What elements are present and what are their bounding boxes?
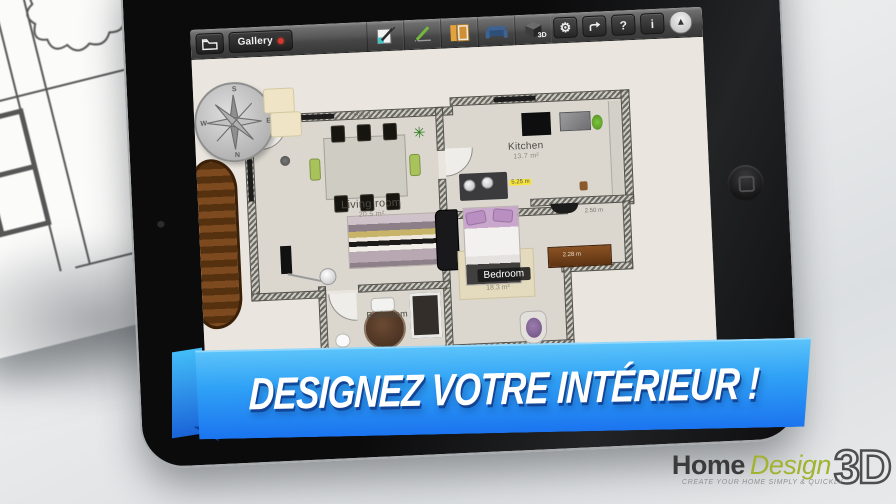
chair-green xyxy=(409,154,421,176)
front-camera xyxy=(157,219,165,227)
tv xyxy=(280,246,292,274)
door-window-icon xyxy=(448,22,471,43)
room-name: Bedroom xyxy=(483,268,524,281)
gallery-button[interactable]: Gallery xyxy=(228,29,293,53)
gear-icon: ⚙ xyxy=(559,19,571,36)
kitchen-label: Kitchen 13.7 m² xyxy=(486,139,567,162)
black-sofa xyxy=(435,209,461,271)
home-button[interactable] xyxy=(727,164,765,202)
banner-text: DESIGNEZ VOTRE INTÉRIEUR ! xyxy=(248,357,760,420)
promo-banner: DESIGNEZ VOTRE INTÉRIEUR ! xyxy=(168,330,828,450)
plant-icon: ✳ xyxy=(413,124,426,143)
chair xyxy=(357,124,372,142)
share-icon xyxy=(588,20,602,33)
chair xyxy=(383,123,398,141)
help-button[interactable]: ? xyxy=(611,14,636,36)
orientation-button[interactable]: ▲ xyxy=(669,10,693,34)
settings-button[interactable]: ⚙ xyxy=(553,17,578,39)
kitchen-appliance xyxy=(559,111,591,131)
bedroom-label-selected[interactable]: Bedroom xyxy=(477,267,530,282)
gallery-label: Gallery xyxy=(237,35,273,48)
chair-green xyxy=(309,158,321,180)
dimension-label: 3.05 m xyxy=(352,112,371,119)
dimension-label: 2.28 m xyxy=(563,252,582,259)
folder-icon xyxy=(202,37,219,50)
kitchen-item xyxy=(579,181,587,190)
room-name: Bathroom xyxy=(366,308,408,320)
stove xyxy=(521,112,551,136)
pillow xyxy=(492,208,513,222)
logo-word-home: Home xyxy=(672,450,745,481)
toolbar-right-group: ⚙ ? i ▲ xyxy=(553,11,693,39)
compass-letter: N xyxy=(235,152,240,159)
draw-walls-icon xyxy=(375,26,396,47)
view-3d-button[interactable]: 3D xyxy=(514,14,552,46)
compass-arrow-icon: ▲ xyxy=(676,17,686,28)
share-button[interactable] xyxy=(582,15,607,37)
notification-dot xyxy=(278,37,284,43)
draw-walls-button[interactable] xyxy=(366,20,404,52)
pencil-icon xyxy=(411,24,434,45)
doors-windows-button[interactable] xyxy=(440,17,478,49)
compass-letter: W xyxy=(200,120,207,127)
furniture-sofa-icon xyxy=(484,21,509,42)
wooden-bench xyxy=(190,158,244,330)
app-logo: Home Design 3D CREATE YOUR HOME SIMPLY &… xyxy=(672,450,890,483)
compass-letter: S xyxy=(232,86,237,93)
ottoman xyxy=(270,111,302,137)
banner-ribbon: DESIGNEZ VOTRE INTÉRIEUR ! xyxy=(195,338,813,440)
view-3d-label: 3D xyxy=(538,31,547,38)
edit-pencil-button[interactable] xyxy=(403,19,441,51)
info-button[interactable]: i xyxy=(640,13,665,35)
logo-tagline: CREATE YOUR HOME SIMPLY & QUICKLY xyxy=(682,479,843,486)
dimension-label: 2.50 m xyxy=(585,208,604,215)
wall xyxy=(622,200,633,268)
room-name: Kitchen xyxy=(508,140,544,153)
logo-word-design: Design xyxy=(750,450,831,481)
bedroom-area: 18.3 m² xyxy=(486,284,510,292)
dimension-label-highlighted: 5.25 m xyxy=(509,179,532,186)
info-label: i xyxy=(650,17,654,31)
chair xyxy=(331,125,346,143)
dining-table xyxy=(323,134,408,200)
help-label: ? xyxy=(619,18,627,32)
ottoman xyxy=(263,87,295,113)
projects-folder-button[interactable] xyxy=(195,33,224,55)
furniture-button[interactable] xyxy=(477,15,515,47)
promo-screenshot: 860 5020 6400 Gallery xyxy=(0,0,896,504)
striped-rug xyxy=(347,212,439,269)
